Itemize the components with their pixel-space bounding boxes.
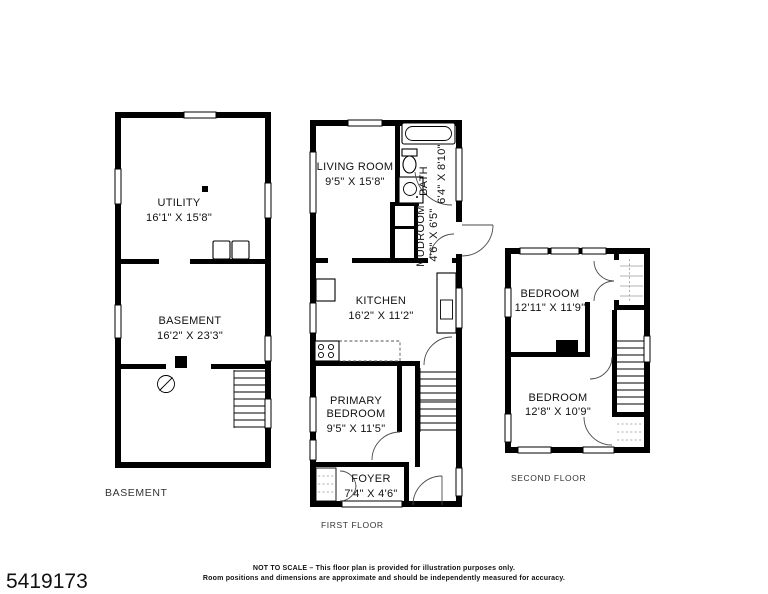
room-dims-mudroom: 4'6" X 6'5" — [428, 208, 440, 261]
room-dims-foyer: 7'4" X 4'6" — [344, 488, 397, 500]
wall — [452, 258, 456, 263]
window — [582, 248, 606, 254]
floor-plan-image: UTILITY 16'1" X 15'8" BASEMENT 16'2" X 2… — [0, 0, 768, 594]
window — [265, 336, 271, 361]
wall — [511, 352, 590, 357]
window — [310, 397, 316, 432]
window — [310, 303, 316, 333]
window — [456, 148, 462, 201]
window — [505, 414, 511, 442]
wall — [121, 259, 159, 264]
room-dims-bedroom-1: 12'11" X 11'9" — [515, 302, 586, 314]
room-label-bath: BATH — [418, 166, 430, 196]
room-dims-utility: 16'1" X 15'8" — [146, 212, 212, 224]
refrigerator-icon — [316, 279, 335, 301]
support-post-icon — [202, 186, 208, 192]
window — [310, 152, 316, 213]
room-dims-bath: 6'4" X 8'10" — [436, 144, 448, 204]
window — [342, 501, 402, 507]
wall — [612, 310, 617, 412]
window — [115, 305, 121, 338]
window — [551, 248, 579, 254]
range-icon — [315, 341, 339, 361]
window — [184, 112, 216, 118]
wall — [585, 302, 590, 354]
window — [644, 336, 650, 362]
room-label-utility: UTILITY — [157, 197, 200, 209]
room-label-living-room: LIVING ROOM — [317, 161, 394, 173]
wall — [415, 361, 420, 467]
room-dims-primary-bedroom: 9'5" X 11'5" — [327, 423, 386, 435]
window — [265, 399, 271, 428]
wall — [614, 254, 619, 260]
wall — [390, 226, 418, 229]
window — [348, 120, 382, 126]
room-dims-living-room: 9'5" X 15'8" — [325, 176, 385, 188]
bathtub-icon — [402, 123, 455, 144]
wall — [115, 462, 271, 468]
room-label-primary-bedroom-line2: BEDROOM — [327, 408, 386, 420]
room-label-bedroom-1: BEDROOM — [521, 288, 580, 300]
floor-label-second-floor: SECOND FLOOR — [511, 473, 586, 483]
room-label-basement: BASEMENT — [159, 315, 222, 327]
disclaimer-line-2: Room positions and dimensions are approx… — [203, 575, 565, 582]
washer-icon — [213, 241, 230, 259]
wall — [310, 361, 416, 366]
window — [520, 248, 548, 254]
room-label-mudroom: MUDROOM — [415, 205, 427, 266]
wall — [404, 462, 409, 506]
wall — [211, 364, 265, 369]
window — [456, 288, 462, 328]
wall — [390, 202, 395, 263]
window — [505, 288, 511, 317]
room-dims-bedroom-2: 12'8" X 10'9" — [525, 406, 591, 418]
wall — [121, 364, 166, 369]
wall — [614, 305, 650, 310]
support-post-icon — [175, 356, 187, 368]
wall — [115, 112, 121, 468]
window — [265, 183, 271, 218]
chimney-icon — [556, 340, 578, 356]
disclaimer-line-1: NOT TO SCALE – This floor plan is provid… — [253, 565, 515, 572]
window — [583, 447, 614, 453]
door-opening — [456, 222, 462, 254]
wall — [612, 412, 645, 417]
room-label-primary-bedroom-line1: PRIMARY — [330, 395, 382, 407]
window — [115, 169, 121, 204]
window — [518, 447, 551, 453]
toilet-icon — [402, 149, 417, 173]
room-label-bedroom-2: BEDROOM — [529, 392, 588, 404]
window — [310, 440, 316, 460]
floor-plan-svg: UTILITY 16'1" X 15'8" BASEMENT 16'2" X 2… — [0, 0, 768, 594]
window — [456, 468, 462, 496]
room-dims-basement: 16'2" X 23'3" — [157, 330, 223, 342]
floor-label-first-floor: FIRST FLOOR — [321, 520, 384, 530]
listing-id: 5419173 — [6, 570, 88, 593]
room-label-foyer: FOYER — [351, 473, 390, 485]
wall — [397, 366, 402, 432]
room-label-kitchen: KITCHEN — [356, 295, 406, 307]
wall — [190, 259, 265, 264]
room-dims-kitchen: 16'2" X 11'2" — [348, 310, 413, 322]
wall — [316, 258, 328, 263]
dryer-icon — [232, 241, 249, 259]
floor-label-basement: BASEMENT — [105, 487, 168, 499]
wall — [310, 462, 407, 467]
